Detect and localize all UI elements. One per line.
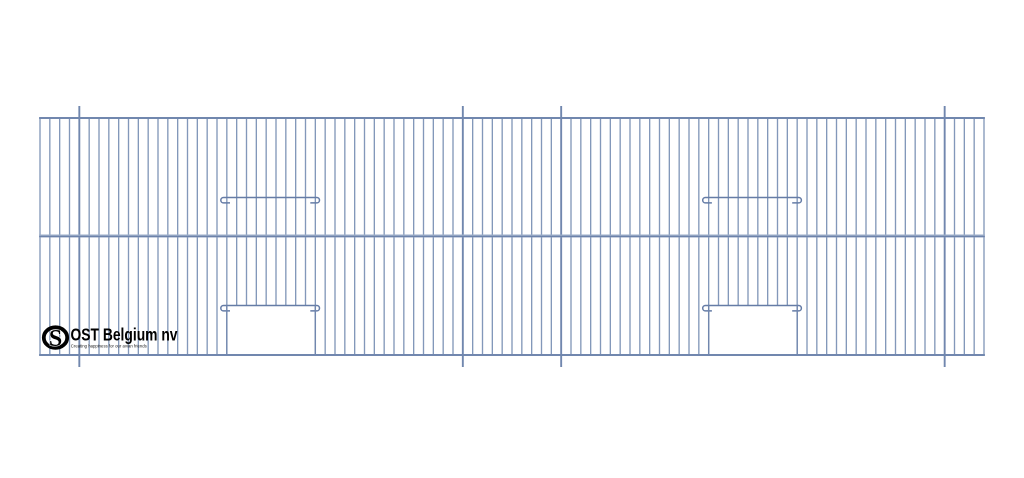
- svg-text:S: S: [49, 326, 62, 352]
- svg-text:Creating happiness for our avi: Creating happiness for our avian friends: [71, 343, 148, 348]
- svg-text:OST Belgium nv: OST Belgium nv: [71, 325, 178, 345]
